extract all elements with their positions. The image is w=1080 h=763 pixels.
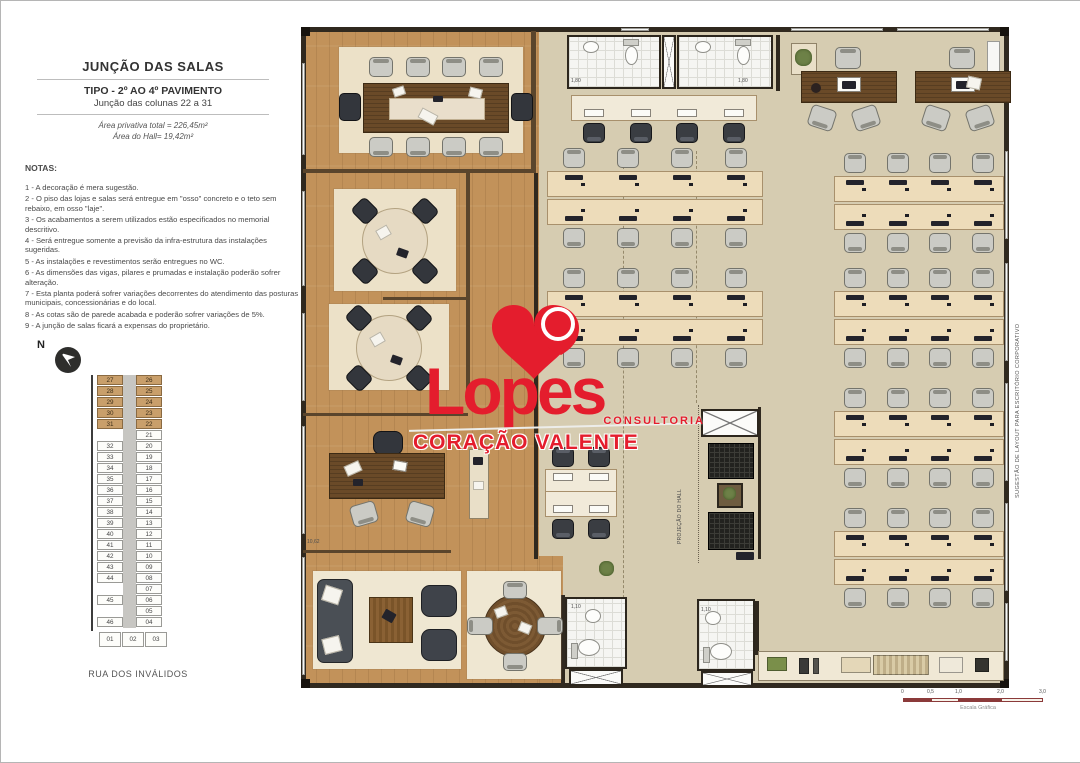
desk-keyboard bbox=[947, 449, 951, 452]
bench-desk bbox=[834, 439, 1004, 465]
desk-keyboard bbox=[689, 303, 693, 306]
desk-keyboard bbox=[947, 543, 951, 546]
desk-keyboard bbox=[743, 183, 747, 186]
desk-screen bbox=[842, 81, 856, 89]
desk-keyboard bbox=[905, 303, 909, 306]
desk-monitor bbox=[931, 456, 949, 461]
conference-end-chair bbox=[511, 93, 533, 121]
office-chair bbox=[972, 388, 994, 408]
desk-keyboard bbox=[947, 303, 951, 306]
desk-keyboard bbox=[990, 214, 994, 217]
office-chair bbox=[844, 388, 866, 408]
scale-tick: 1,0 bbox=[955, 689, 962, 695]
desk-keyboard bbox=[862, 214, 866, 217]
desk-keyboard bbox=[947, 329, 951, 332]
desk-keyboard bbox=[862, 449, 866, 452]
scale-tick: 2,0 bbox=[997, 689, 1004, 695]
conference-chair bbox=[442, 137, 466, 157]
toilet bbox=[735, 39, 751, 46]
desk-monitor bbox=[974, 576, 992, 581]
dining-chair bbox=[467, 617, 493, 635]
desk-monitor bbox=[931, 180, 949, 185]
office-chair bbox=[588, 519, 610, 539]
window-segment bbox=[791, 28, 883, 31]
window-segment bbox=[1005, 603, 1008, 661]
desk-keyboard bbox=[905, 214, 909, 217]
office-chair bbox=[725, 148, 747, 168]
office-chair bbox=[887, 153, 909, 173]
desk-keyboard bbox=[990, 188, 994, 191]
desk-item bbox=[353, 479, 363, 486]
desk-monitor bbox=[846, 456, 864, 461]
desk-keyboard bbox=[689, 329, 693, 332]
hall-item bbox=[736, 552, 754, 560]
desk-keyboard bbox=[990, 569, 994, 572]
credenza-item bbox=[841, 657, 871, 673]
wall-bottom bbox=[301, 683, 1009, 688]
window-segment bbox=[302, 426, 305, 534]
wall-between-meetings bbox=[383, 297, 468, 300]
desk-keyboard bbox=[581, 209, 585, 212]
plant-icon bbox=[599, 561, 614, 576]
desk-monitor bbox=[974, 415, 992, 420]
office-chair bbox=[844, 348, 866, 368]
wc-room bbox=[567, 35, 661, 89]
workstation-panel bbox=[584, 109, 604, 117]
window-segment bbox=[1005, 263, 1008, 361]
desk-keyboard bbox=[905, 449, 909, 452]
logo-campaign-tagline: CORAÇÃO VALENTE bbox=[413, 431, 707, 455]
office-chair bbox=[844, 508, 866, 528]
workstation-panel bbox=[589, 473, 609, 481]
office-chair bbox=[563, 228, 585, 248]
toilet bbox=[737, 46, 750, 65]
hall-dotted-line bbox=[698, 405, 700, 563]
logo-small-tagline: CONSULTORIA bbox=[499, 415, 705, 427]
armchair bbox=[421, 629, 457, 661]
window-segment bbox=[897, 28, 989, 31]
office-chair bbox=[929, 153, 951, 173]
window-segment bbox=[302, 313, 305, 401]
office-chair bbox=[671, 268, 693, 288]
office-chair bbox=[887, 348, 909, 368]
dining-chair bbox=[503, 653, 527, 671]
desk-monitor bbox=[889, 535, 907, 540]
desk-monitor bbox=[727, 216, 745, 221]
executive-chair bbox=[373, 431, 403, 455]
office-chair bbox=[563, 268, 585, 288]
dimension-label: 1,10 bbox=[701, 607, 711, 613]
cabinet-item bbox=[473, 481, 484, 490]
desk-monitor bbox=[565, 216, 583, 221]
desk-keyboard bbox=[635, 303, 639, 306]
desk-paper bbox=[966, 76, 982, 91]
office-chair bbox=[929, 233, 951, 253]
desk-monitor bbox=[727, 336, 745, 341]
office-chair bbox=[835, 47, 861, 69]
dimension-label: 1,10 bbox=[571, 604, 581, 610]
desk-monitor bbox=[974, 336, 992, 341]
office-chair bbox=[844, 233, 866, 253]
desk-keyboard bbox=[990, 329, 994, 332]
dimension-label: 1,80 bbox=[571, 78, 581, 84]
desk-monitor bbox=[931, 221, 949, 226]
desk-keyboard bbox=[990, 423, 994, 426]
office-chair bbox=[972, 348, 994, 368]
conference-chair bbox=[406, 137, 430, 157]
conference-chair bbox=[479, 137, 503, 157]
desk-monitor bbox=[974, 535, 992, 540]
office-chair bbox=[929, 468, 951, 488]
floorplan-sheet: JUNÇÃO DAS SALAS TIPO - 2º AO 4º PAVIMEN… bbox=[0, 0, 1080, 763]
desk-keyboard bbox=[862, 543, 866, 546]
desk-monitor bbox=[846, 221, 864, 226]
desk-keyboard bbox=[862, 329, 866, 332]
office-chair bbox=[887, 233, 909, 253]
credenza-item bbox=[975, 658, 989, 672]
dimension-label: 1,80 bbox=[738, 78, 748, 84]
office-chair bbox=[617, 228, 639, 248]
shaft bbox=[701, 409, 759, 437]
scale-tick: 0 bbox=[901, 689, 904, 695]
plant-icon bbox=[723, 487, 736, 500]
toilet bbox=[710, 643, 732, 660]
office-chair bbox=[617, 148, 639, 168]
dining-chair bbox=[537, 617, 563, 635]
desk-monitor bbox=[889, 415, 907, 420]
desk-monitor bbox=[931, 295, 949, 300]
desk-round-item bbox=[811, 83, 821, 93]
column-block bbox=[301, 679, 310, 688]
desk-keyboard bbox=[990, 449, 994, 452]
armchair bbox=[421, 585, 457, 617]
window-segment bbox=[302, 191, 305, 286]
desk-monitor bbox=[974, 221, 992, 226]
office-chair bbox=[972, 508, 994, 528]
desk-keyboard bbox=[635, 209, 639, 212]
scale-caption: Escala Gráfica bbox=[903, 705, 1053, 711]
desk-keyboard bbox=[905, 188, 909, 191]
desk-keyboard bbox=[905, 543, 909, 546]
office-chair bbox=[617, 268, 639, 288]
office-chair bbox=[929, 388, 951, 408]
office-chair bbox=[676, 123, 698, 143]
office-chair bbox=[887, 268, 909, 288]
toilet bbox=[571, 643, 578, 659]
desk-monitor bbox=[931, 576, 949, 581]
office-chair bbox=[887, 588, 909, 608]
scale-tick: 0,5 bbox=[927, 689, 934, 695]
office-chair bbox=[552, 519, 574, 539]
office-chair bbox=[671, 148, 693, 168]
scale-segment bbox=[1001, 698, 1043, 702]
desk-monitor bbox=[619, 216, 637, 221]
office-chair bbox=[671, 228, 693, 248]
desk-monitor bbox=[889, 180, 907, 185]
credenza-item bbox=[799, 658, 809, 674]
desk-monitor bbox=[727, 175, 745, 180]
desk-monitor bbox=[673, 295, 691, 300]
office-chair bbox=[972, 153, 994, 173]
scale-tick: 3,0 bbox=[1039, 689, 1046, 695]
sink bbox=[583, 41, 599, 53]
column-block bbox=[301, 27, 310, 36]
sink bbox=[695, 41, 711, 53]
bench-desk bbox=[545, 491, 617, 517]
scale-segment bbox=[903, 698, 931, 702]
bench-desk bbox=[547, 199, 763, 225]
desk-monitor bbox=[846, 535, 864, 540]
desk-keyboard bbox=[990, 303, 994, 306]
workstation-panel bbox=[589, 505, 609, 513]
desk-keyboard bbox=[743, 303, 747, 306]
office-chair bbox=[887, 388, 909, 408]
office-chair bbox=[844, 153, 866, 173]
desk-monitor bbox=[931, 336, 949, 341]
credenza-item bbox=[813, 658, 819, 674]
window-segment bbox=[1005, 383, 1008, 481]
desk-monitor bbox=[974, 295, 992, 300]
lopes-wordmark: Lopes bbox=[425, 361, 685, 421]
conference-end-chair bbox=[339, 93, 361, 121]
bench-desk bbox=[834, 559, 1004, 585]
toilet bbox=[625, 46, 638, 65]
office-chair bbox=[723, 123, 745, 143]
workstation-panel bbox=[724, 109, 744, 117]
office-chair bbox=[972, 233, 994, 253]
desk-monitor bbox=[673, 216, 691, 221]
wc-room bbox=[677, 35, 773, 89]
office-chair bbox=[844, 588, 866, 608]
bench-desk bbox=[834, 204, 1004, 230]
desk-keyboard bbox=[689, 183, 693, 186]
bench-desk bbox=[571, 95, 757, 121]
office-chair bbox=[972, 468, 994, 488]
conference-chair bbox=[479, 57, 503, 77]
wall-wc-top-right-side bbox=[776, 35, 780, 91]
desk-keyboard bbox=[905, 569, 909, 572]
desk-keyboard bbox=[947, 569, 951, 572]
desk-monitor bbox=[974, 180, 992, 185]
shaft bbox=[701, 671, 753, 687]
desk-keyboard bbox=[947, 214, 951, 217]
office-chair bbox=[725, 348, 747, 368]
office-chair bbox=[949, 47, 975, 69]
office-chair bbox=[929, 588, 951, 608]
conference-chair bbox=[369, 57, 393, 77]
desk-keyboard bbox=[743, 329, 747, 332]
shaft bbox=[569, 669, 623, 686]
desk-keyboard bbox=[743, 209, 747, 212]
elevator bbox=[708, 443, 754, 479]
desk-monitor bbox=[931, 535, 949, 540]
office-chair bbox=[929, 348, 951, 368]
credenza-item bbox=[873, 655, 929, 675]
workstation-panel bbox=[631, 109, 651, 117]
window-segment bbox=[621, 28, 649, 31]
window-segment bbox=[1005, 151, 1008, 239]
toilet bbox=[623, 39, 639, 46]
window-segment bbox=[302, 63, 305, 155]
layout-suggestion-label: SUGESTÃO DE LAYOUT PARA ESCRITÓRIO CORPO… bbox=[1015, 283, 1021, 498]
desk-monitor bbox=[889, 336, 907, 341]
scale-segment bbox=[959, 698, 1001, 702]
office-chair bbox=[844, 268, 866, 288]
desk-monitor bbox=[565, 175, 583, 180]
column-block bbox=[1000, 27, 1009, 36]
shaft bbox=[662, 35, 676, 89]
cabinet-item bbox=[473, 457, 483, 465]
desk-monitor bbox=[619, 295, 637, 300]
desk-monitor bbox=[619, 336, 637, 341]
workstation-panel bbox=[677, 109, 697, 117]
toilet bbox=[578, 639, 600, 656]
office-chair bbox=[972, 268, 994, 288]
desk-keyboard bbox=[862, 423, 866, 426]
window-segment bbox=[1005, 503, 1008, 591]
office-chair bbox=[725, 268, 747, 288]
window-segment bbox=[302, 557, 305, 675]
credenza-item bbox=[767, 657, 787, 671]
office-chair bbox=[887, 508, 909, 528]
desk-monitor bbox=[673, 175, 691, 180]
desk-monitor bbox=[846, 576, 864, 581]
workstation-panel bbox=[553, 473, 573, 481]
graphic-scale: Escala Gráfica 00,51,02,03,0 bbox=[903, 689, 1053, 717]
conference-chair bbox=[406, 57, 430, 77]
desk-keyboard bbox=[905, 329, 909, 332]
desk-monitor bbox=[931, 415, 949, 420]
scale-segment bbox=[931, 698, 959, 702]
desk-keyboard bbox=[635, 183, 639, 186]
desk-keyboard bbox=[862, 303, 866, 306]
office-chair bbox=[725, 228, 747, 248]
dimension-label: 10,62 bbox=[307, 539, 320, 545]
table-phone bbox=[433, 96, 443, 102]
desk-monitor bbox=[619, 175, 637, 180]
office-chair bbox=[563, 148, 585, 168]
elevator bbox=[708, 512, 754, 550]
desk-monitor bbox=[846, 180, 864, 185]
desk-keyboard bbox=[689, 209, 693, 212]
desk-keyboard bbox=[581, 183, 585, 186]
office-chair bbox=[929, 268, 951, 288]
desk-keyboard bbox=[947, 188, 951, 191]
desk-keyboard bbox=[947, 423, 951, 426]
wall-office-lounge bbox=[303, 550, 451, 553]
desk-monitor bbox=[974, 456, 992, 461]
desk-monitor bbox=[889, 221, 907, 226]
office-chair bbox=[630, 123, 652, 143]
desk-monitor bbox=[727, 295, 745, 300]
desk-keyboard bbox=[990, 543, 994, 546]
sink bbox=[585, 609, 601, 623]
desk-monitor bbox=[846, 295, 864, 300]
plant-icon bbox=[795, 49, 812, 66]
office-chair bbox=[929, 508, 951, 528]
dining-chair bbox=[503, 581, 527, 599]
conference-chair bbox=[442, 57, 466, 77]
desk-keyboard bbox=[862, 188, 866, 191]
wall-wc-bottom-right-side bbox=[755, 601, 759, 655]
workstation-panel bbox=[553, 505, 573, 513]
desk-monitor bbox=[846, 336, 864, 341]
desk-monitor bbox=[889, 456, 907, 461]
conference-chair bbox=[369, 137, 393, 157]
desk-monitor bbox=[673, 336, 691, 341]
executive-desk bbox=[329, 453, 445, 499]
desk-keyboard bbox=[862, 569, 866, 572]
toilet bbox=[703, 647, 710, 663]
desk-monitor bbox=[889, 295, 907, 300]
desk-monitor bbox=[846, 415, 864, 420]
sink bbox=[705, 611, 721, 625]
desk-keyboard bbox=[905, 423, 909, 426]
office-chair bbox=[844, 468, 866, 488]
bench-desk bbox=[834, 319, 1004, 345]
office-chair bbox=[887, 468, 909, 488]
wall-below-conference bbox=[303, 169, 533, 173]
credenza-item bbox=[939, 657, 963, 673]
desk-keyboard bbox=[635, 329, 639, 332]
desk-monitor bbox=[889, 576, 907, 581]
office-chair bbox=[583, 123, 605, 143]
office-chair bbox=[972, 588, 994, 608]
